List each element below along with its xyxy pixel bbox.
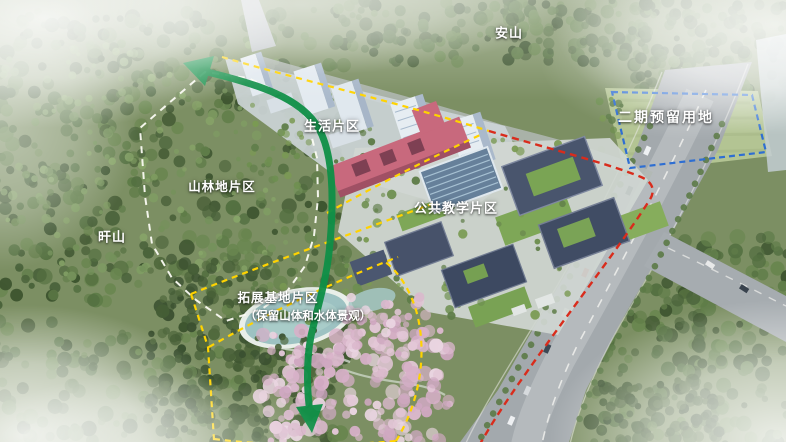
label-expansion-area: 拓展基地片区 xyxy=(237,292,318,305)
label-gan-shan-mountain: 旰山 xyxy=(98,231,126,244)
label-an-shan-mountain: 安山 xyxy=(495,27,523,40)
label-expansion-area-note: （保留山体和水体景观） xyxy=(245,311,372,323)
label-living-area: 生活片区 xyxy=(304,120,360,133)
label-forest-area: 山林地片区 xyxy=(188,181,256,194)
label-phase2-area: 二期预留用地 xyxy=(618,110,714,124)
label-teaching-area: 公共教学片区 xyxy=(414,202,498,215)
rendered-scene xyxy=(0,0,786,442)
master-plan-aerial-view: 安山 生活片区 山林地片区 旰山 公共教学片区 二期预留用地 拓展基地片区 （保… xyxy=(0,0,786,442)
